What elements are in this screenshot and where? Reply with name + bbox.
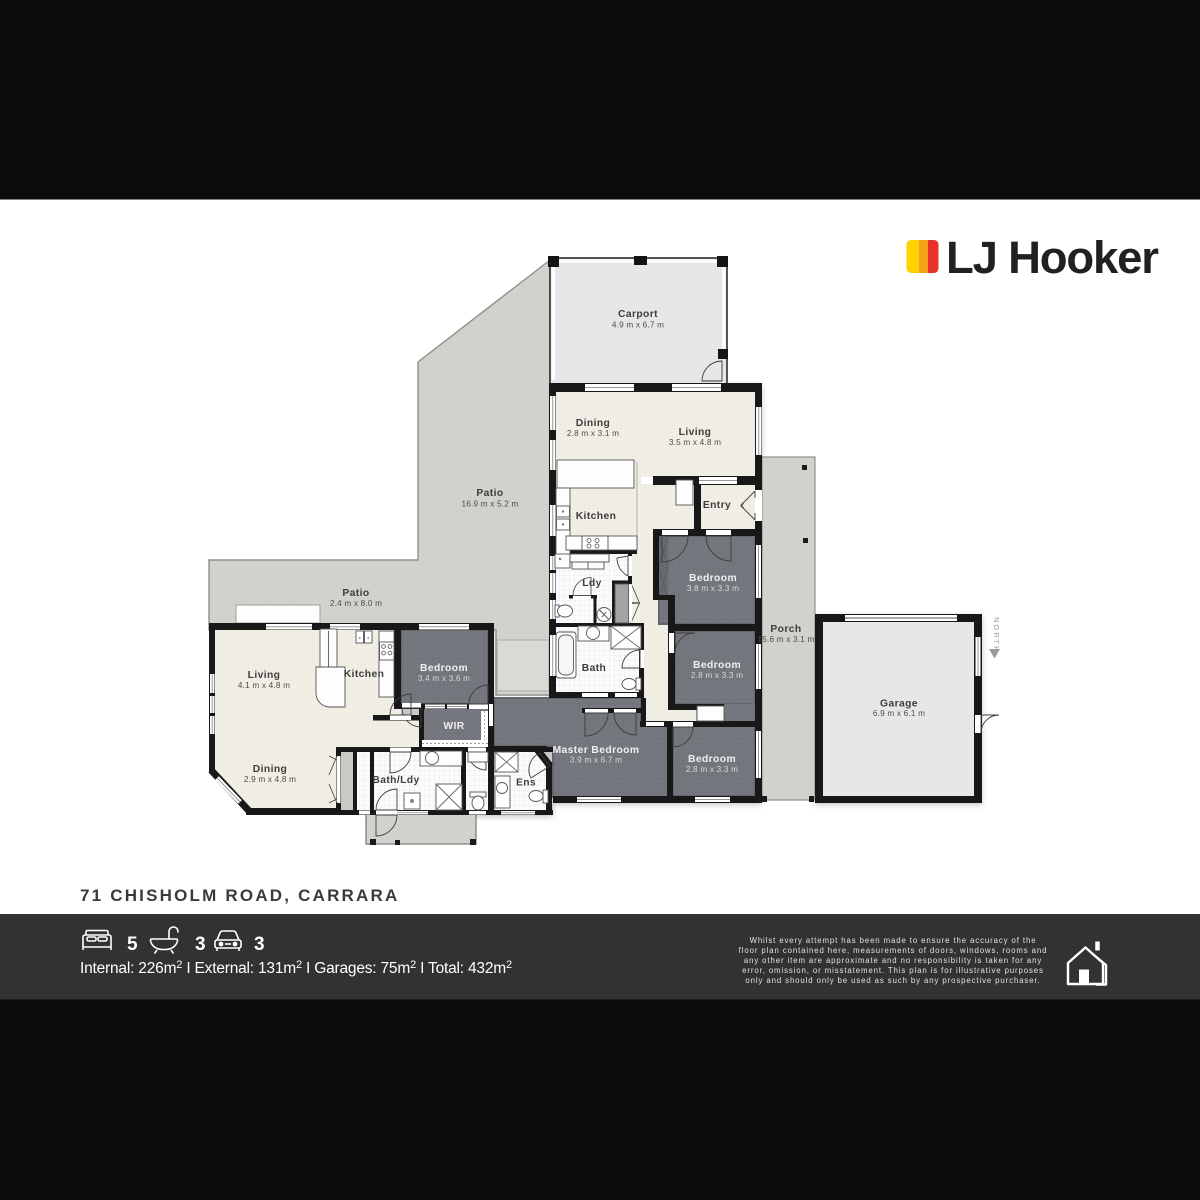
svg-text:3.5 m x 4.8 m: 3.5 m x 4.8 m bbox=[669, 438, 721, 447]
svg-text:4.1 m x 4.8 m: 4.1 m x 4.8 m bbox=[238, 681, 290, 690]
svg-text:Bath: Bath bbox=[582, 663, 606, 674]
svg-text:Living: Living bbox=[248, 670, 281, 681]
svg-text:5: 5 bbox=[127, 934, 138, 955]
svg-text:Porch: Porch bbox=[770, 624, 801, 635]
svg-text:Bath/Ldy: Bath/Ldy bbox=[372, 775, 419, 786]
svg-text:2.8 m x 3.3 m: 2.8 m x 3.3 m bbox=[691, 671, 743, 680]
svg-text:3: 3 bbox=[254, 934, 265, 955]
svg-text:NORTH: NORTH bbox=[992, 617, 1001, 653]
svg-text:4.9 m x 6.7 m: 4.9 m x 6.7 m bbox=[612, 321, 664, 330]
svg-text:Ens: Ens bbox=[516, 778, 536, 789]
svg-text:LJ Hooker: LJ Hooker bbox=[946, 232, 1159, 283]
svg-text:6.9 m x 6.1 m: 6.9 m x 6.1 m bbox=[873, 709, 925, 718]
svg-text:Dining: Dining bbox=[253, 764, 287, 775]
svg-text:15.6 m x 3.1 m: 15.6 m x 3.1 m bbox=[758, 635, 815, 644]
svg-text:2.4 m x 8.0 m: 2.4 m x 8.0 m bbox=[330, 599, 382, 608]
svg-text:Patio: Patio bbox=[476, 488, 503, 499]
svg-text:2.8 m x 3.3 m: 2.8 m x 3.3 m bbox=[686, 765, 738, 774]
svg-text:floor plan contained here, mea: floor plan contained here, measurements … bbox=[739, 946, 1048, 955]
svg-text:Kitchen: Kitchen bbox=[576, 511, 617, 522]
svg-text:71 CHISHOLM ROAD, CARRARA: 71 CHISHOLM ROAD, CARRARA bbox=[80, 886, 399, 905]
svg-text:3.9 m x 6.7 m: 3.9 m x 6.7 m bbox=[570, 756, 622, 765]
svg-text:16.9 m x 5.2 m: 16.9 m x 5.2 m bbox=[462, 500, 519, 509]
svg-text:error, omission, or misstateme: error, omission, or misstatement. This p… bbox=[742, 966, 1044, 975]
svg-text:Internal: 226m2 I External: 13: Internal: 226m2 I External: 131m2 I Gara… bbox=[80, 959, 512, 977]
svg-text:Whilst every attempt has been: Whilst every attempt has been made to en… bbox=[750, 936, 1037, 945]
svg-text:Garage: Garage bbox=[880, 699, 918, 710]
svg-text:Master Bedroom: Master Bedroom bbox=[553, 745, 640, 756]
svg-text:Entry: Entry bbox=[703, 500, 731, 511]
svg-text:3.4 m x 3.6 m: 3.4 m x 3.6 m bbox=[418, 674, 470, 683]
svg-text:3: 3 bbox=[195, 934, 206, 955]
svg-text:3.8 m x 3.3 m: 3.8 m x 3.3 m bbox=[687, 584, 739, 593]
svg-text:Bedroom: Bedroom bbox=[693, 660, 741, 671]
svg-text:Dining: Dining bbox=[576, 418, 610, 429]
svg-text:only and should only be used a: only and should only be used as such by … bbox=[745, 976, 1040, 985]
svg-text:Living: Living bbox=[679, 427, 712, 438]
svg-text:Bedroom: Bedroom bbox=[420, 663, 468, 674]
svg-text:Bedroom: Bedroom bbox=[689, 573, 737, 584]
svg-text:Kitchen: Kitchen bbox=[344, 669, 385, 680]
svg-text:any other item are approximate: any other item are approximate and no re… bbox=[744, 956, 1042, 965]
svg-text:2.8 m x 3.1 m: 2.8 m x 3.1 m bbox=[567, 429, 619, 438]
svg-text:WIR: WIR bbox=[443, 721, 464, 732]
svg-text:Patio: Patio bbox=[342, 588, 369, 599]
svg-text:Ldy: Ldy bbox=[582, 578, 602, 589]
svg-text:Bedroom: Bedroom bbox=[688, 754, 736, 765]
svg-text:Carport: Carport bbox=[618, 309, 658, 320]
svg-text:2.9 m x 4.8 m: 2.9 m x 4.8 m bbox=[244, 775, 296, 784]
